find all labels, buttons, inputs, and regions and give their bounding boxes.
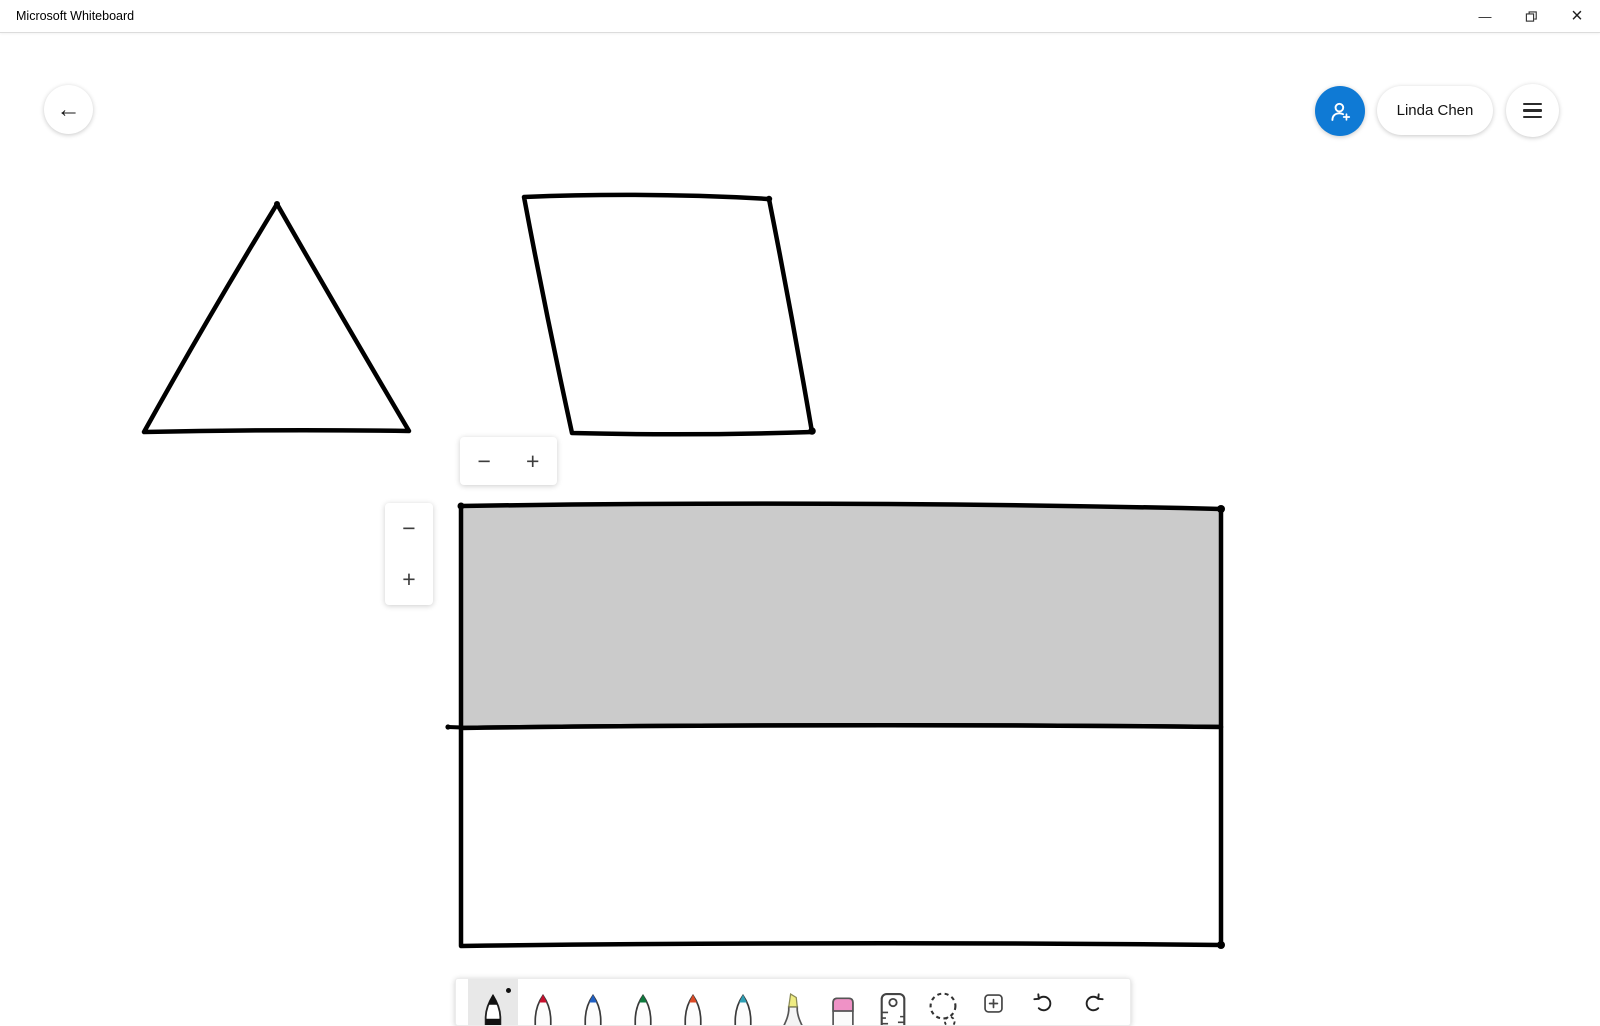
minus-icon: − <box>402 515 415 542</box>
titlebar: Microsoft Whiteboard — × <box>0 0 1600 33</box>
selected-tool-dot <box>506 988 511 993</box>
minimize-button[interactable]: — <box>1462 0 1508 32</box>
pen-toolbar <box>455 978 1131 1026</box>
app-title: Microsoft Whiteboard <box>0 9 134 23</box>
tool-red-pen[interactable] <box>518 979 568 1026</box>
minimize-icon: — <box>1479 10 1492 23</box>
restore-button[interactable] <box>1508 0 1554 32</box>
user-name-label: Linda Chen <box>1397 102 1474 119</box>
undo-icon <box>1030 990 1057 1017</box>
whiteboard-app: Microsoft Whiteboard — × <box>0 0 1600 1026</box>
green-pen-icon <box>626 987 660 1026</box>
tool-orange-pen[interactable] <box>668 979 718 1026</box>
tool-green-pen[interactable] <box>618 979 668 1026</box>
back-button[interactable]: ← <box>44 85 93 134</box>
menu-button[interactable] <box>1506 84 1559 137</box>
zoom-out-button-vertical[interactable]: − <box>385 503 433 554</box>
close-icon: × <box>1571 6 1583 26</box>
close-button[interactable]: × <box>1554 0 1600 32</box>
restore-icon <box>1523 8 1540 25</box>
tool-black-pen[interactable] <box>468 979 518 1026</box>
eraser-icon <box>826 987 860 1026</box>
person-add-icon <box>1327 98 1354 125</box>
minus-icon: − <box>478 448 491 475</box>
highlighter-icon <box>776 987 810 1026</box>
rectangle-top-half-shape[interactable] <box>461 504 1221 728</box>
invite-button[interactable] <box>1315 86 1365 136</box>
zoom-in-button-vertical[interactable]: + <box>385 554 433 605</box>
zoom-in-button-horizontal[interactable]: + <box>509 437 558 485</box>
back-arrow-icon: ← <box>57 96 81 124</box>
tool-eraser[interactable] <box>818 979 868 1026</box>
rectangle-bottom-half-shape[interactable] <box>461 725 1221 946</box>
tool-highlighter[interactable] <box>768 979 818 1026</box>
tool-ruler[interactable] <box>868 979 918 1026</box>
hamburger-menu-icon <box>1523 103 1542 118</box>
tool-blue-pen[interactable] <box>568 979 618 1026</box>
triangle-shape[interactable] <box>144 204 409 432</box>
redo-icon <box>1080 990 1107 1017</box>
tool-undo[interactable] <box>1018 979 1068 1026</box>
black-pen-icon <box>476 987 510 1026</box>
whiteboard-canvas[interactable] <box>0 0 1600 1026</box>
plus-icon: + <box>526 448 539 475</box>
ink-strokes <box>144 195 1221 946</box>
red-pen-icon <box>526 987 560 1026</box>
user-name-button[interactable]: Linda Chen <box>1377 86 1493 135</box>
window-controls: — × <box>1462 0 1600 32</box>
plus-icon: + <box>402 566 415 593</box>
zoom-out-button-horizontal[interactable]: − <box>460 437 509 485</box>
tool-teal-pen[interactable] <box>718 979 768 1026</box>
lasso-select-icon <box>926 987 960 1026</box>
blue-pen-icon <box>576 987 610 1026</box>
teal-pen-icon <box>726 987 760 1026</box>
tool-lasso-select[interactable] <box>918 979 968 1026</box>
zoom-control-vertical: − + <box>385 503 433 605</box>
insert-plus-icon <box>980 990 1007 1017</box>
tool-redo[interactable] <box>1068 979 1118 1026</box>
orange-pen-icon <box>676 987 710 1026</box>
tool-insert[interactable] <box>968 979 1018 1026</box>
parallelogram-shape[interactable] <box>524 195 812 434</box>
zoom-control-horizontal: − + <box>460 437 557 485</box>
ruler-icon <box>876 987 910 1026</box>
